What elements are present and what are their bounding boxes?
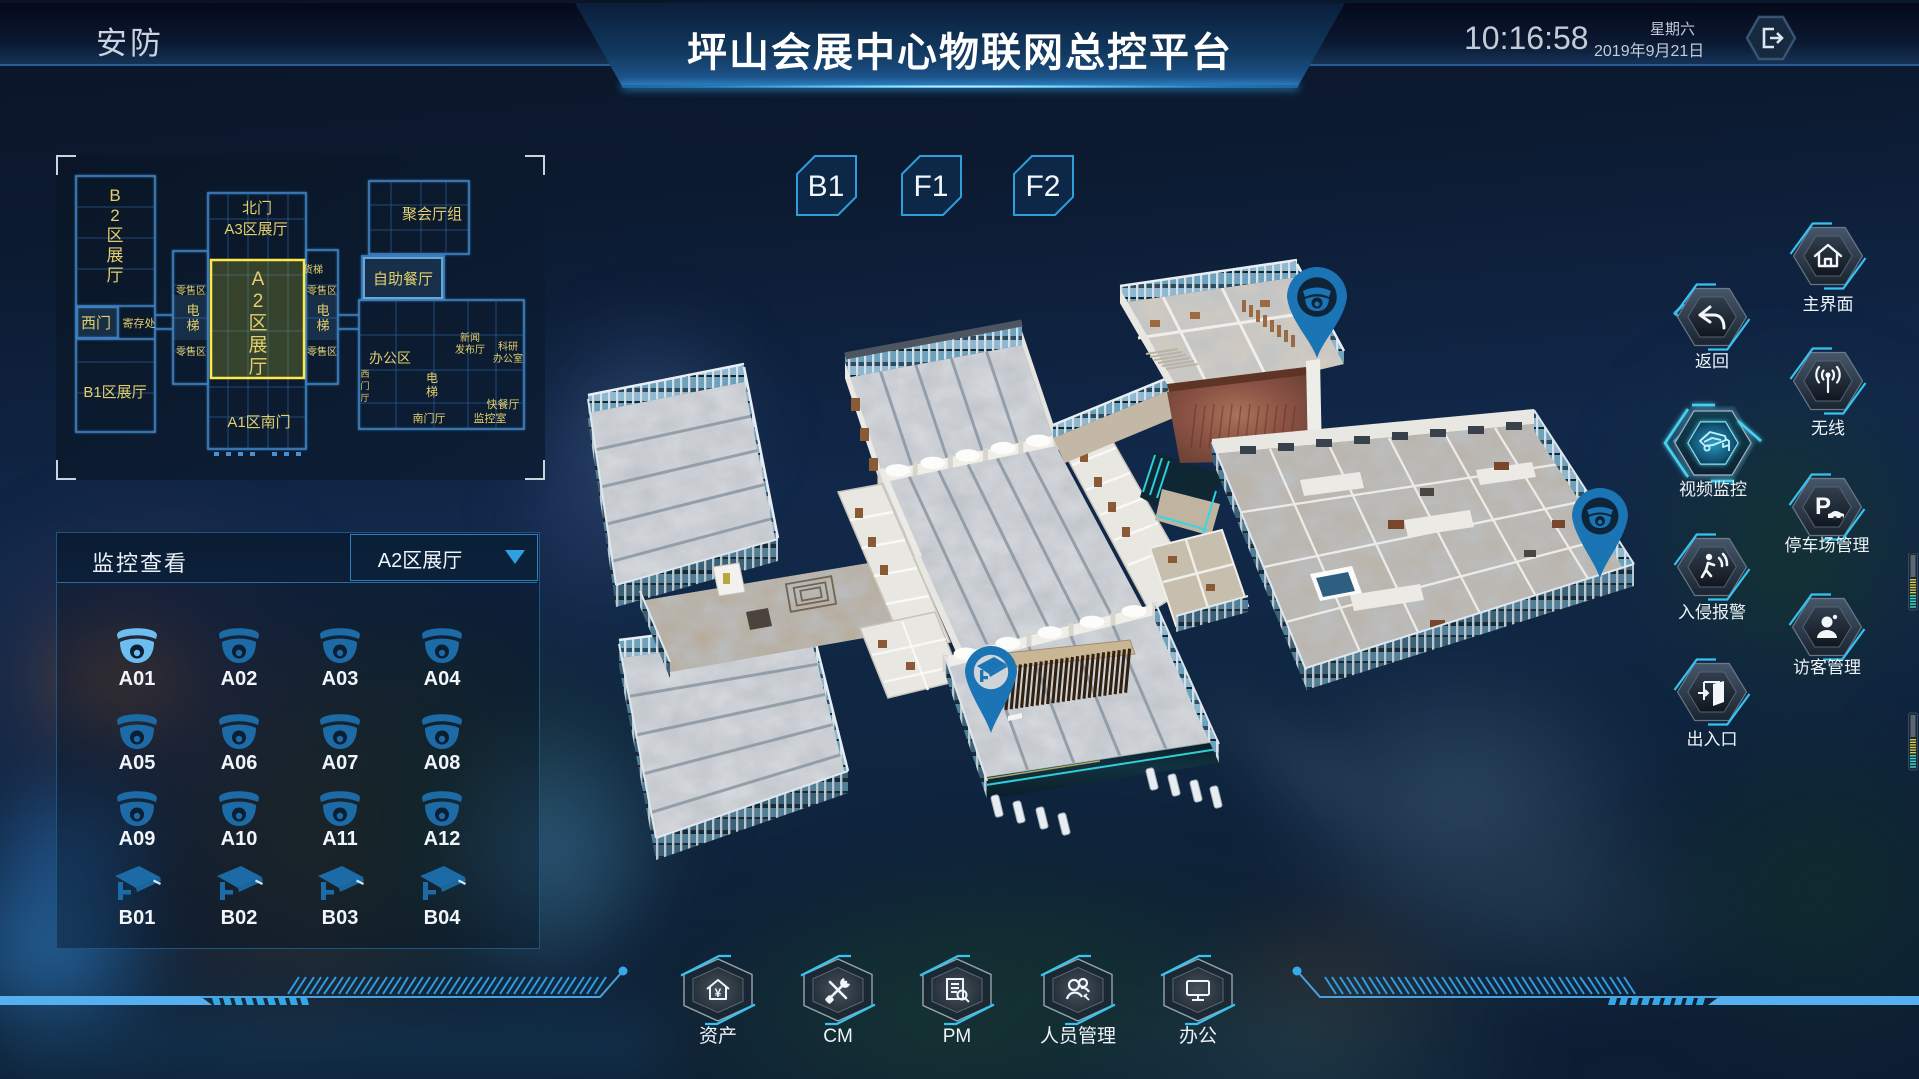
svg-text:主界面: 主界面 — [1803, 295, 1854, 314]
svg-text:电: 电 — [426, 371, 438, 385]
svg-text:快餐厅: 快餐厅 — [487, 397, 520, 411]
svg-text:梯: 梯 — [426, 385, 438, 399]
svg-text:西门厅: 西门厅 — [360, 369, 369, 403]
svg-text:寄存处: 寄存处 — [123, 316, 156, 330]
svg-text:出入口: 出入口 — [1687, 730, 1738, 749]
svg-text:电: 电 — [316, 303, 329, 318]
svg-text:新闻: 新闻 — [460, 331, 480, 344]
svg-text:零售区: 零售区 — [176, 345, 206, 358]
svg-text:发布厅: 发布厅 — [455, 343, 485, 356]
svg-text:B1: B1 — [808, 170, 845, 203]
svg-text:北门: 北门 — [242, 200, 272, 217]
svg-text:无线: 无线 — [1811, 419, 1845, 438]
svg-text:访客管理: 访客管理 — [1793, 658, 1861, 677]
svg-text:A1区南门: A1区南门 — [227, 414, 290, 431]
svg-text:办公室: 办公室 — [493, 352, 523, 365]
svg-text:零售区: 零售区 — [307, 345, 337, 358]
svg-text:聚会厅组: 聚会厅组 — [402, 206, 462, 223]
svg-text:科研: 科研 — [498, 340, 518, 353]
svg-text:监控室: 监控室 — [474, 411, 507, 425]
svg-text:电: 电 — [186, 303, 199, 318]
svg-text:返回: 返回 — [1695, 352, 1729, 371]
svg-text:梯: 梯 — [186, 318, 199, 333]
svg-text:西门: 西门 — [81, 315, 111, 332]
svg-text:零售区: 零售区 — [307, 284, 337, 297]
svg-text:梯: 梯 — [316, 318, 329, 333]
svg-text:F2: F2 — [1025, 170, 1060, 203]
svg-text:视频监控: 视频监控 — [1679, 480, 1747, 499]
svg-text:自助餐厅: 自助餐厅 — [373, 271, 433, 288]
svg-text:南门厅: 南门厅 — [413, 411, 446, 425]
svg-text:货梯: 货梯 — [303, 263, 323, 276]
svg-text:A3区展厅: A3区展厅 — [224, 221, 287, 238]
svg-text:零售区: 零售区 — [176, 284, 206, 297]
svg-text:F1: F1 — [913, 170, 948, 203]
svg-text:停车场管理: 停车场管理 — [1785, 536, 1870, 555]
svg-text:办公区: 办公区 — [369, 350, 411, 366]
svg-text:入侵报警: 入侵报警 — [1678, 603, 1746, 622]
svg-text:B1区展厅: B1区展厅 — [83, 384, 146, 401]
